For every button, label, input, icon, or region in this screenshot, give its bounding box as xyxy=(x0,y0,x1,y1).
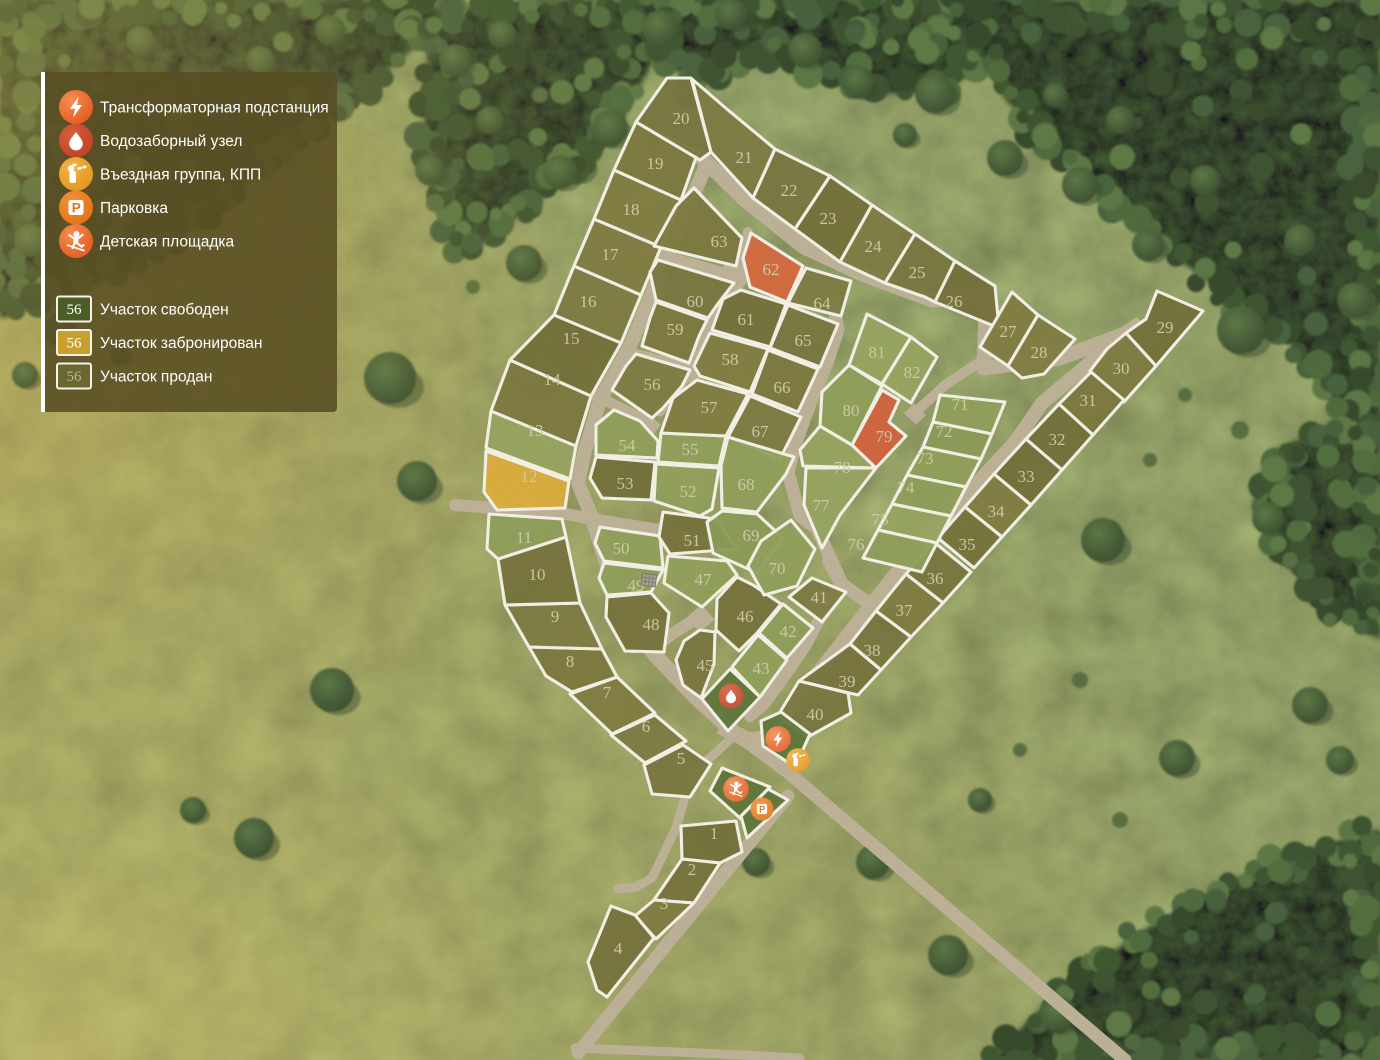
svg-text:Трансформаторная подстанция: Трансформаторная подстанция xyxy=(100,100,329,117)
svg-text:56: 56 xyxy=(67,336,83,352)
svg-text:Парковка: Парковка xyxy=(100,200,168,217)
svg-text:P: P xyxy=(72,200,81,215)
svg-text:Детская площадка: Детская площадка xyxy=(100,234,234,251)
svg-text:Водозаборный узел: Водозаборный узел xyxy=(100,133,242,150)
svg-text:Въездная группа, КПП: Въездная группа, КПП xyxy=(100,167,261,184)
svg-text:Участок продан: Участок продан xyxy=(100,369,212,386)
svg-text:56: 56 xyxy=(67,369,83,385)
svg-text:56: 56 xyxy=(67,302,83,318)
svg-text:Участок свободен: Участок свободен xyxy=(100,302,229,319)
svg-text:Участок забронирован: Участок забронирован xyxy=(100,335,262,352)
